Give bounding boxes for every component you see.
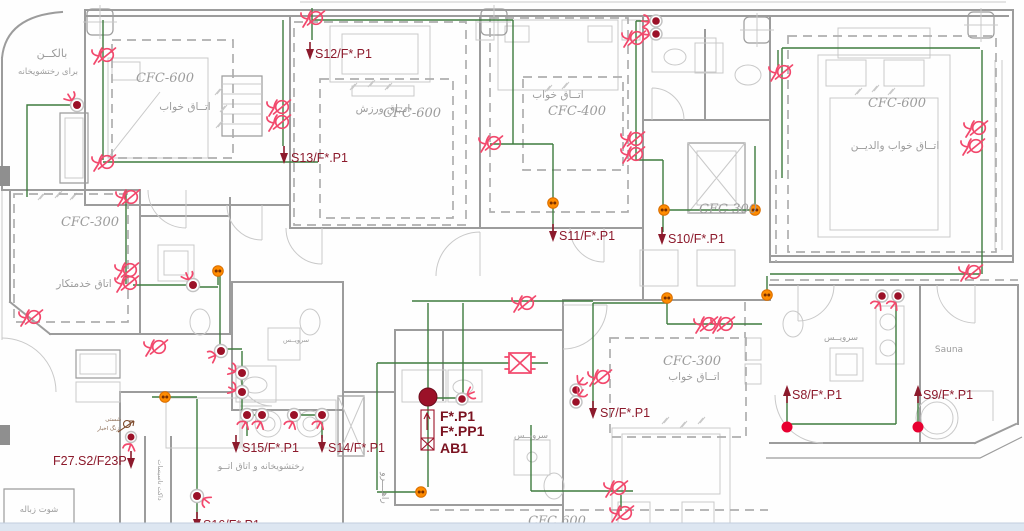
riser-label-s8: S8/F*.P1 xyxy=(792,388,842,402)
area-label-corridor: راهــــرو xyxy=(379,471,389,503)
fire-alarm-floor-plan: S12/F*.P1 S13/F*.P1 S11/F*.P1 S10/F*.P1 … xyxy=(0,0,1024,531)
room-name-bedroom2: اتــاق خواب xyxy=(532,89,583,101)
riser-label-s7: S7/F*.P1 xyxy=(600,406,650,420)
room-name-bedroom3: اتــاق خواب xyxy=(668,371,719,383)
room-code-bedroom1: CFC-600 xyxy=(136,71,194,86)
room-code-master: CFC-600 xyxy=(868,96,926,111)
viewer-bottom-band xyxy=(0,523,1024,531)
wire-endpoint-icon xyxy=(913,422,924,433)
area-label-balcony: بالكــن xyxy=(37,47,68,60)
riser-label-s10: S10/F*.P1 xyxy=(668,232,725,246)
room-name-master: اتــاق خواب والديــن xyxy=(851,140,940,152)
fire-panel-icon xyxy=(419,388,437,406)
area-label-balcony-sub: براى رختشويخانه xyxy=(18,67,78,77)
area-label-sauna: Sauna xyxy=(935,345,963,355)
riser-label-s9: S9/F*.P1 xyxy=(923,388,973,402)
area-label-laundry: رختشويخانه و اتاق اتــو xyxy=(217,462,304,472)
area-label-wc3: سرويــس xyxy=(824,333,858,343)
damper-icon xyxy=(505,353,535,373)
wire-endpoint-icon xyxy=(782,422,793,433)
room-code-gym: CFC-600 xyxy=(383,106,441,121)
room-code-bedroom2: CFC-400 xyxy=(548,104,606,119)
area-label-chute: شوت زباله xyxy=(20,505,58,515)
room-name-maid: اتاق خدمتكار xyxy=(55,278,111,290)
riser-label-s15: S15/F*.P1 xyxy=(242,441,299,455)
panel-label-1: F*.P1 xyxy=(440,408,475,424)
panel-label-2: F*.PP1 xyxy=(440,423,485,439)
riser-label-s14: S14/F*.P1 xyxy=(328,441,385,455)
riser-label-s12: S12/F*.P1 xyxy=(315,47,372,61)
riser-label-f27: F27.S2/F23P xyxy=(53,454,127,468)
room-code-bedroom3: CFC-300 xyxy=(663,354,721,369)
panel-label-3: AB1 xyxy=(440,440,468,456)
riser-box-icon xyxy=(421,410,434,450)
room-code-hall: CFC-300 xyxy=(699,202,757,217)
room-code-maid: CFC-300 xyxy=(61,215,119,230)
note-label-1: شستى xyxy=(105,417,121,423)
area-label-wc2: سرويــس xyxy=(514,431,548,441)
note-label-2: زنگ اخبار xyxy=(96,425,119,432)
riser-label-s13: S13/F*.P1 xyxy=(291,151,348,165)
room-name-bedroom1: اتــاق خواب xyxy=(159,101,210,113)
area-label-duct: داكت تاسيسات xyxy=(156,459,164,500)
plan-canvas: S12/F*.P1 S13/F*.P1 S11/F*.P1 S10/F*.P1 … xyxy=(0,0,1024,531)
riser-label-s11: S11/F*.P1 xyxy=(559,229,615,243)
area-label-wc1: سرويــس xyxy=(283,336,309,344)
